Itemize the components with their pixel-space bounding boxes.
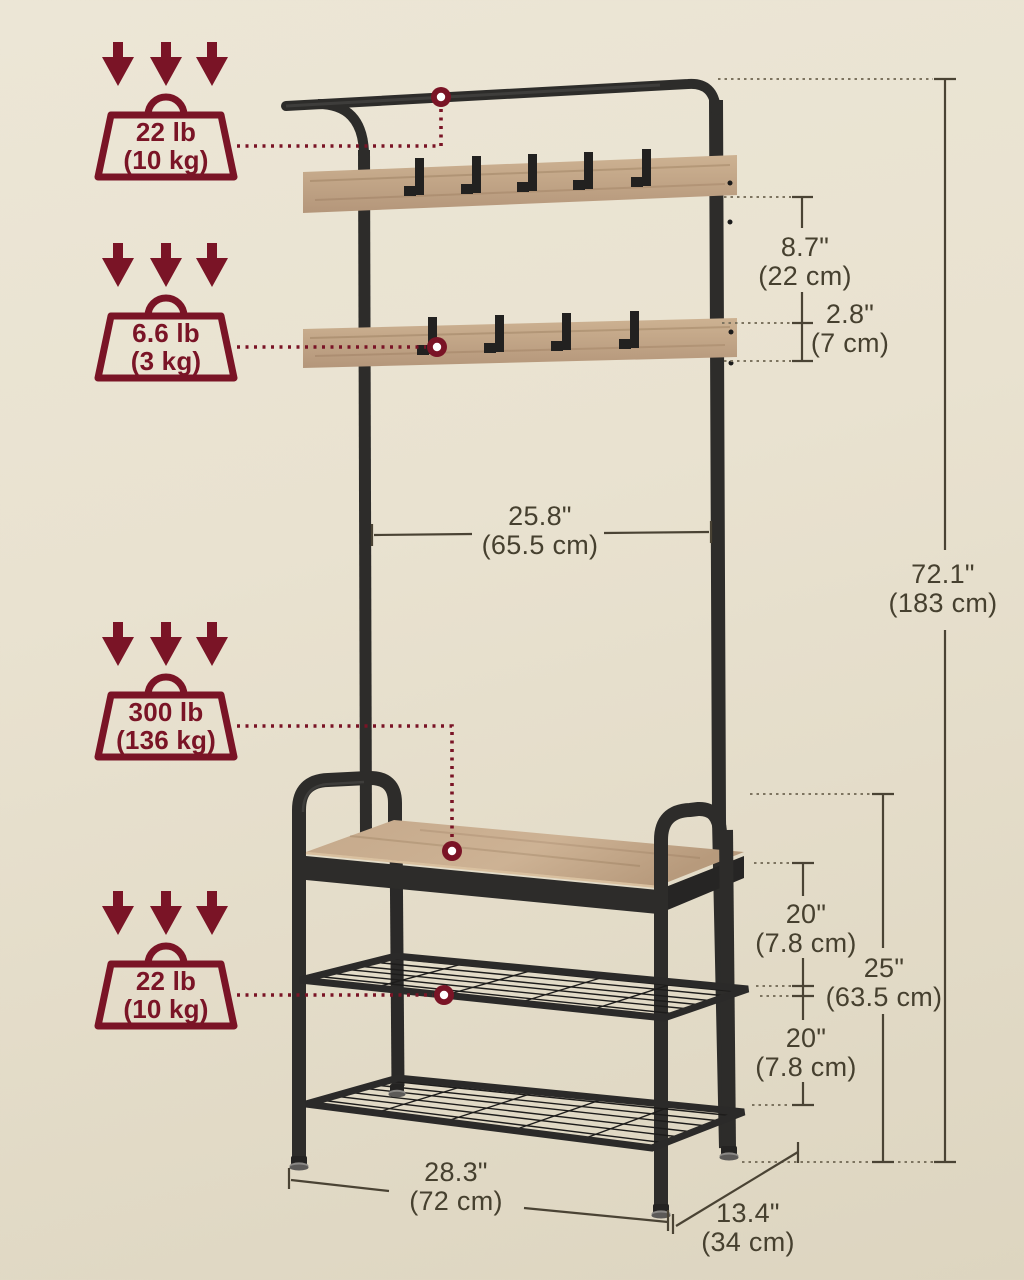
dim-overall-width: 28.3" (72 cm) — [366, 1158, 546, 1216]
weight-badge-shelf: 22 lb (10 kg) — [64, 891, 268, 1031]
badge-metric: (136 kg) — [64, 726, 268, 754]
dim-upper-shelf-gap: 20" (7.8 cm) — [716, 900, 896, 958]
dim-inches: 20" — [716, 1024, 896, 1053]
dim-metric: (63.5 cm) — [794, 983, 974, 1012]
dim-hook-row-spacing: 8.7" (22 cm) — [715, 233, 895, 291]
badge-value: 22 lb — [64, 967, 268, 995]
dim-inches: 25.8" — [450, 502, 630, 531]
weight-badge-hooks: 6.6 lb (3 kg) — [64, 243, 268, 383]
dim-bench-height: 25" (63.5 cm) — [794, 954, 974, 1012]
dim-metric: (183 cm) — [853, 589, 1024, 618]
dim-inches: 13.4" — [658, 1199, 838, 1228]
dim-inches: 20" — [716, 900, 896, 929]
dim-slat-height: 2.8" (7 cm) — [760, 300, 940, 358]
lower-mesh-shelf — [306, 1078, 744, 1148]
dim-inches: 2.8" — [760, 300, 940, 329]
anchor-dot-icon — [431, 87, 451, 107]
down-arrows-icon — [102, 622, 228, 666]
storage-bench — [290, 778, 749, 1219]
badge-value: 6.6 lb — [64, 319, 268, 347]
dim-inches: 72.1" — [853, 560, 1024, 589]
dim-inches: 28.3" — [366, 1158, 546, 1187]
dim-metric: (72 cm) — [366, 1187, 546, 1216]
dim-rod-width: 25.8" (65.5 cm) — [450, 502, 630, 560]
weight-badge-top-rail: 22 lb (10 kg) — [64, 42, 268, 182]
anchor-dot-icon — [427, 337, 447, 357]
badge-metric: (3 kg) — [64, 347, 268, 375]
anchor-dot-icon — [442, 841, 462, 861]
dim-metric: (65.5 cm) — [450, 531, 630, 560]
badge-metric: (10 kg) — [64, 146, 268, 174]
down-arrows-icon — [102, 42, 228, 86]
dim-total-height: 72.1" (183 cm) — [853, 560, 1024, 618]
badge-value: 22 lb — [64, 118, 268, 146]
weight-badge-bench: 300 lb (136 kg) — [64, 622, 268, 762]
top-hanging-rail — [286, 84, 716, 110]
dim-metric: (7 cm) — [760, 329, 940, 358]
rail-highlight — [286, 85, 660, 106]
product-dimension-diagram: 22 lb (10 kg) 6.6 lb (3 kg) 300 lb (136 … — [0, 0, 1024, 1280]
dim-overall-depth: 13.4" (34 cm) — [658, 1199, 838, 1257]
badge-value: 300 lb — [64, 698, 268, 726]
dim-metric: (22 cm) — [715, 262, 895, 291]
upper-mesh-shelf — [300, 956, 748, 1018]
dim-inches: 25" — [794, 954, 974, 983]
down-arrows-icon — [102, 891, 228, 935]
dim-inches: 8.7" — [715, 233, 895, 262]
dim-lower-shelf-gap: 20" (7.8 cm) — [716, 1024, 896, 1082]
dim-metric: (34 cm) — [658, 1228, 838, 1257]
anchor-dot-icon — [434, 985, 454, 1005]
down-arrows-icon — [102, 243, 228, 287]
left-post — [364, 150, 366, 840]
badge-metric: (10 kg) — [64, 995, 268, 1023]
dim-metric: (7.8 cm) — [716, 1053, 896, 1082]
